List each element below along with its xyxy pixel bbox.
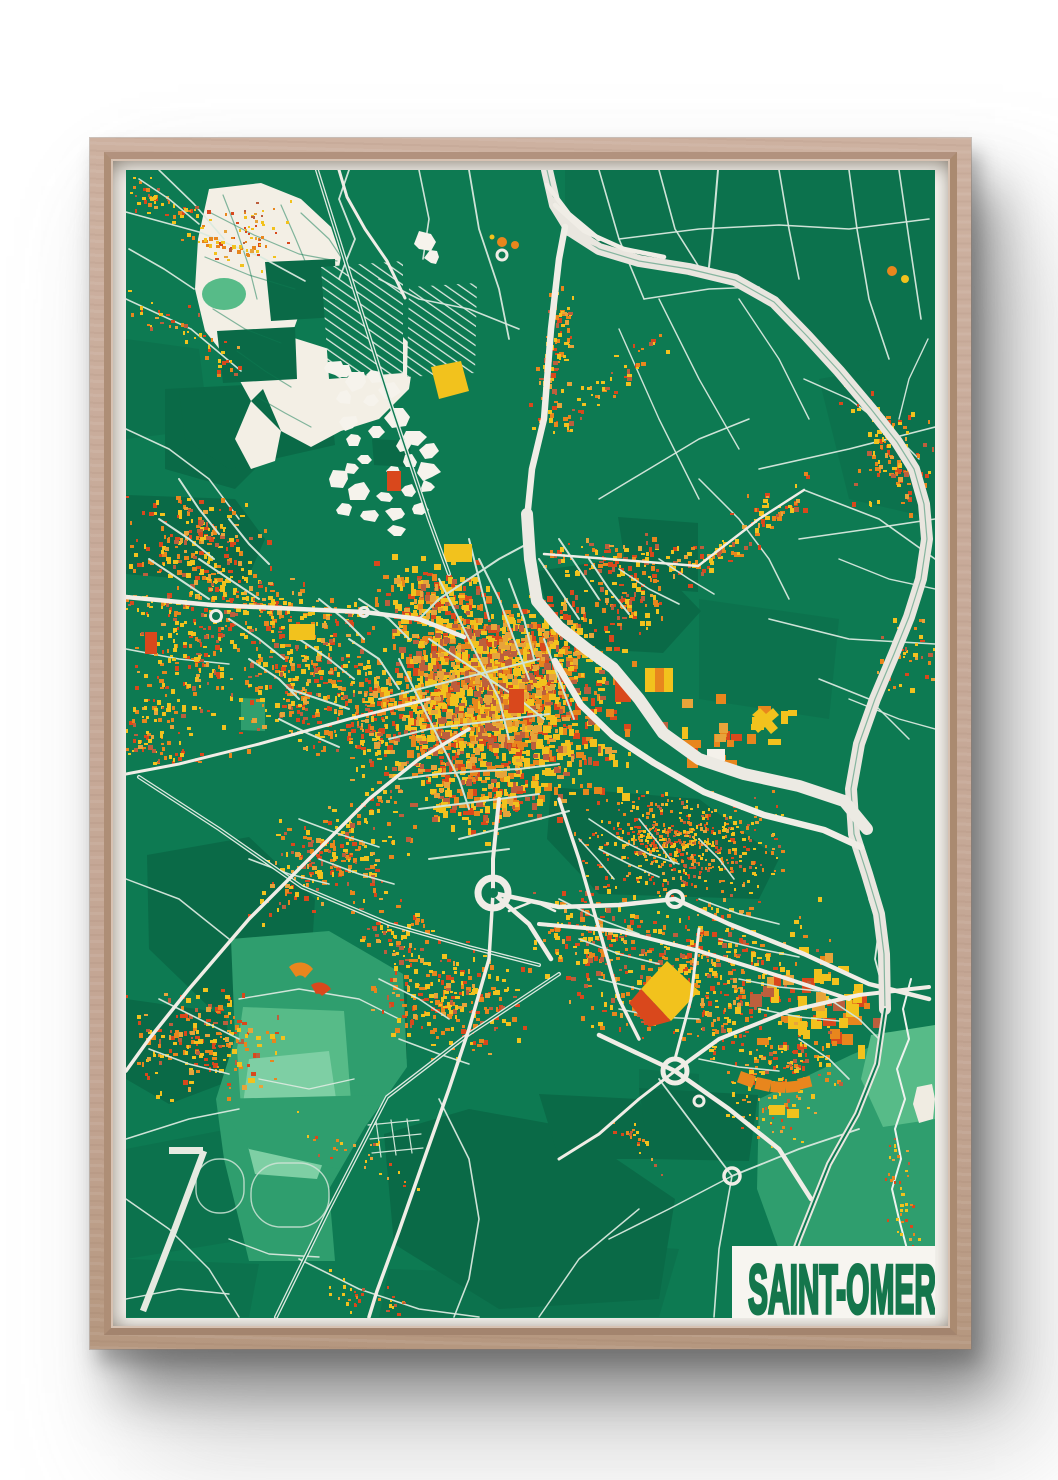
svg-text:SAINT-OMER: SAINT-OMER (748, 1251, 935, 1318)
